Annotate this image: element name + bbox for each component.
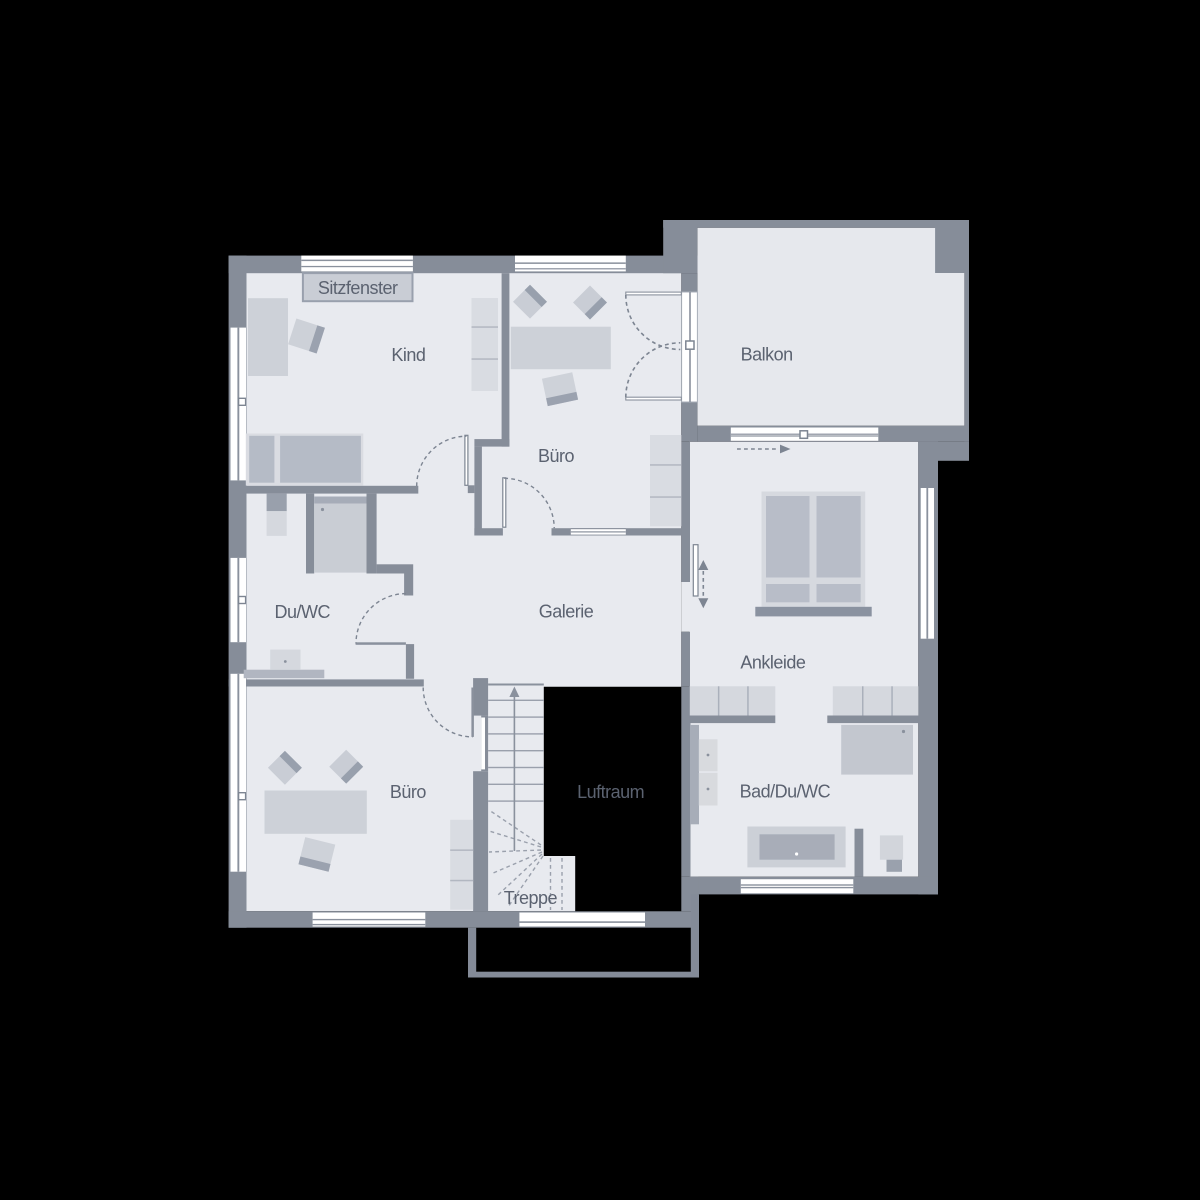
svg-text:Du/WC: Du/WC bbox=[275, 602, 331, 622]
svg-text:Büro: Büro bbox=[390, 782, 427, 802]
svg-text:Treppe: Treppe bbox=[504, 888, 558, 908]
svg-text:Ankleide: Ankleide bbox=[740, 653, 806, 673]
svg-text:Bad/Du/WC: Bad/Du/WC bbox=[740, 782, 831, 802]
svg-text:Sitzfenster: Sitzfenster bbox=[318, 278, 398, 298]
svg-text:Kind: Kind bbox=[391, 345, 425, 365]
svg-text:Galerie: Galerie bbox=[539, 602, 594, 622]
svg-text:Luftraum: Luftraum bbox=[577, 782, 644, 802]
svg-text:Büro: Büro bbox=[538, 446, 575, 466]
svg-text:Balkon: Balkon bbox=[741, 344, 793, 364]
